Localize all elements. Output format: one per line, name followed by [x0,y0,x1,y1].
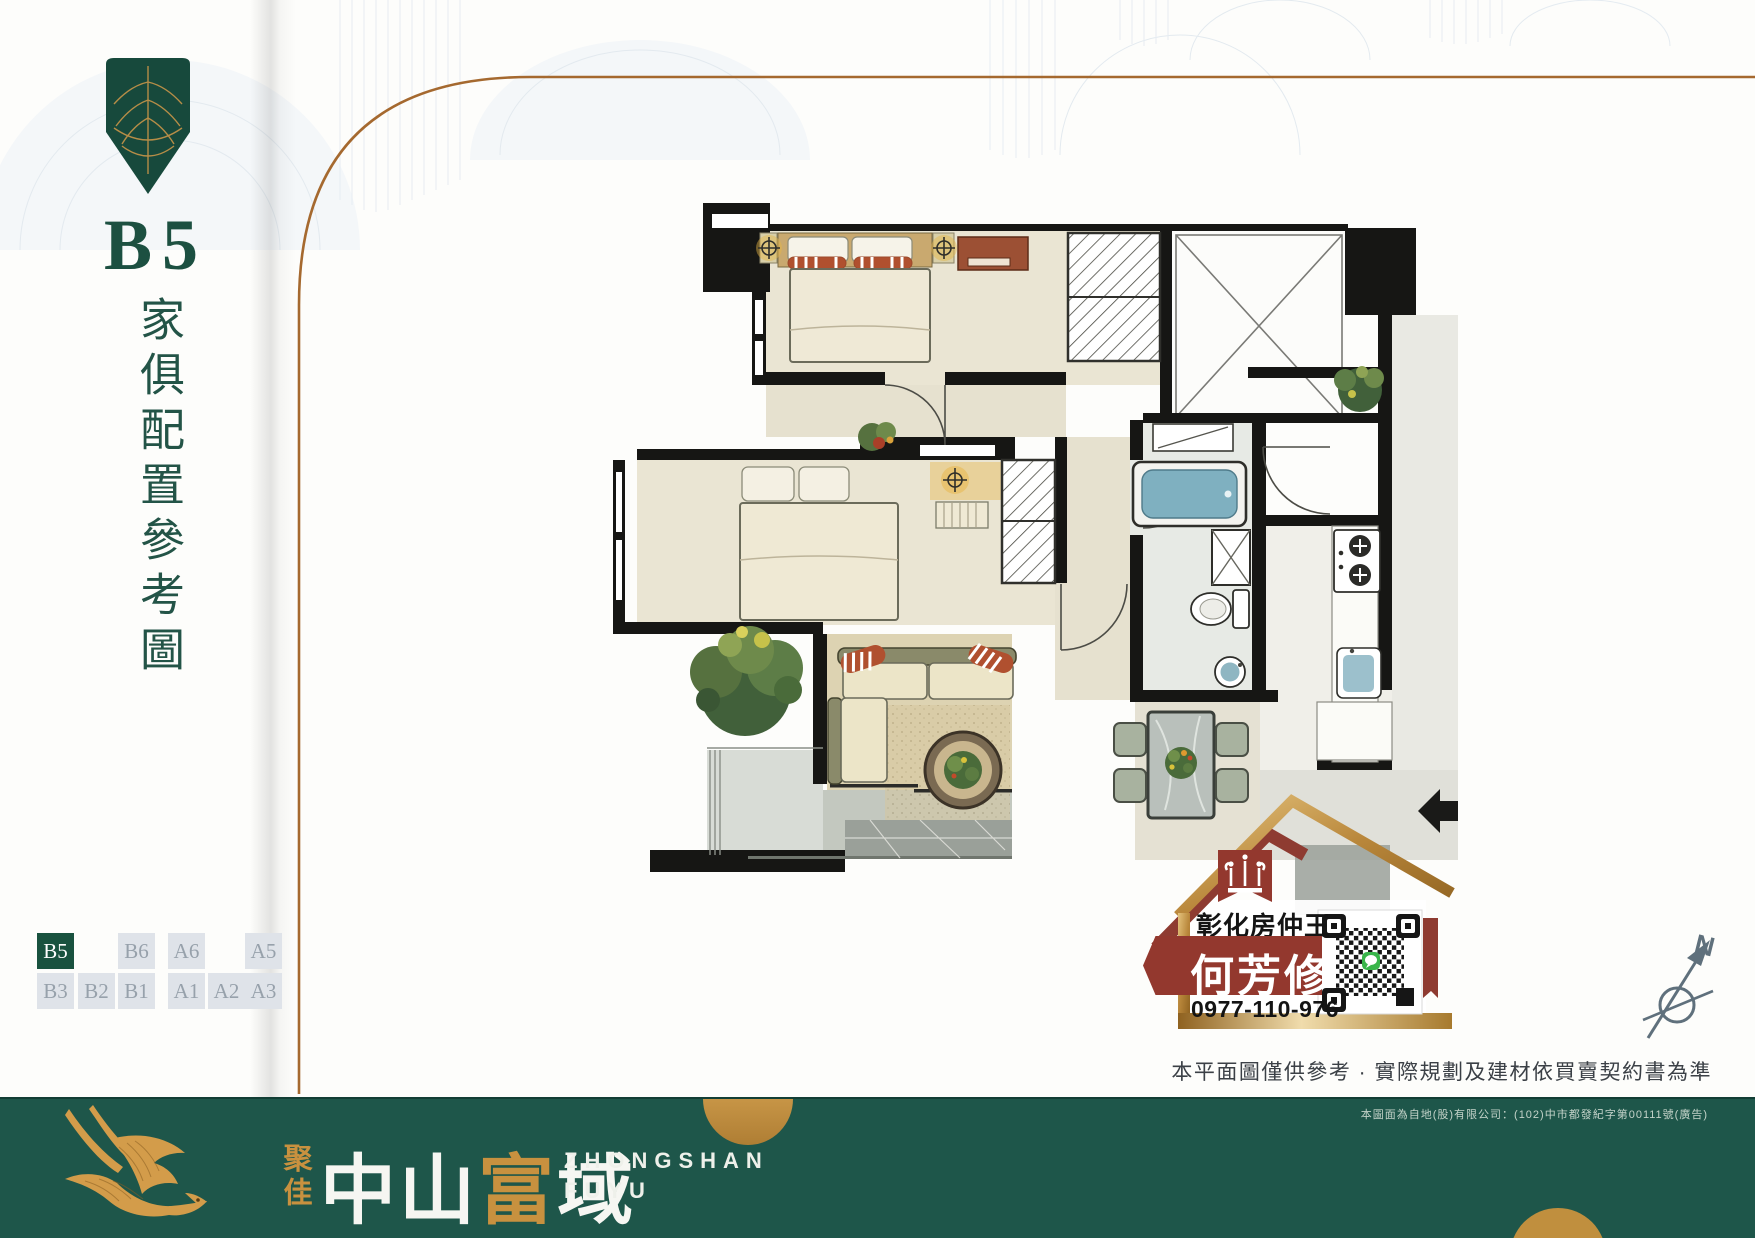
disclaimer-text: 本平面圖僅供參考 · 實際規劃及建材依買賣契約書為準 [1171,1056,1712,1086]
realtor-phone-number: 0977-110-976 [1191,996,1339,1023]
entry-door-swing [1263,447,1330,514]
unit-cell-b1[interactable]: B1 [118,973,155,1009]
column-top-right [1345,228,1416,315]
leaf-logo-icon [98,56,198,196]
unit-cell-b6[interactable]: B6 [118,933,155,969]
unit-cell-a3[interactable]: A3 [245,973,282,1009]
developer-brand-vertical: 聚佳 [274,1143,316,1211]
gold-circle-decoration [1510,1208,1606,1238]
dresser-icon [958,237,1028,270]
wall-bottom-left [650,850,845,872]
wardrobe-second-icon [1002,460,1055,583]
unit-code-title: B5 [104,204,208,287]
unit-cell-a6[interactable]: A6 [168,933,205,969]
wardrobe-master-icon [1068,233,1160,361]
shower-icon [1212,530,1250,585]
planter-floor [707,750,823,855]
plan-caption-vertical: 家俱配置參考圖 [126,296,191,681]
realtor-agent-name: 何芳修 [1190,940,1331,1004]
unit-cell-b5[interactable]: B5 [37,933,74,969]
project-name-en-line2: FUYU [564,1178,652,1204]
balcony-plant-icon [690,626,803,736]
unit-cell-b2[interactable]: B2 [78,973,115,1009]
coffee-table-icon [925,732,1001,808]
project-name-gold-char: 富 [478,1150,557,1234]
crown-pennant-icon [1218,850,1272,902]
gold-half-disc-decoration [703,1099,793,1145]
vanity-icon [1153,424,1233,451]
unit-cell-a1[interactable]: A1 [168,973,205,1009]
toilet-icon [1191,590,1249,628]
unit-cell-b3[interactable]: B3 [37,973,74,1009]
kitchen-sink-icon [1337,648,1381,698]
entry-corridor-floor [1392,315,1458,775]
terrace-stone-floor [845,820,1012,858]
compass-north-label: N [1692,929,1718,963]
swallow-bird-icon [55,1105,215,1235]
badge-ribbon-right [1423,918,1438,998]
license-fine-print: 本圖面為自地(股)有限公司：(102)中市都發紀字第00111號(廣告) [1361,1106,1708,1122]
footer-banner: 聚佳 中山富域 ZHONGSHAN FUYU 本圖面為自地(股)有限公司：(10… [0,1097,1755,1238]
bathtub-icon [1133,462,1246,526]
project-name-en-line1: ZHONGSHAN [564,1148,769,1174]
dining-table-icon [1148,712,1214,818]
floor-plan [613,203,1458,915]
bed-master-icon [778,233,932,362]
stove-icon [1334,530,1380,592]
flyer-page: N [0,0,1755,1238]
round-basin-icon [1215,657,1245,687]
project-name-part1: 中山 [320,1150,478,1234]
unit-cell-a2[interactable]: A2 [208,973,245,1009]
unit-cell-a5[interactable]: A5 [245,933,282,969]
